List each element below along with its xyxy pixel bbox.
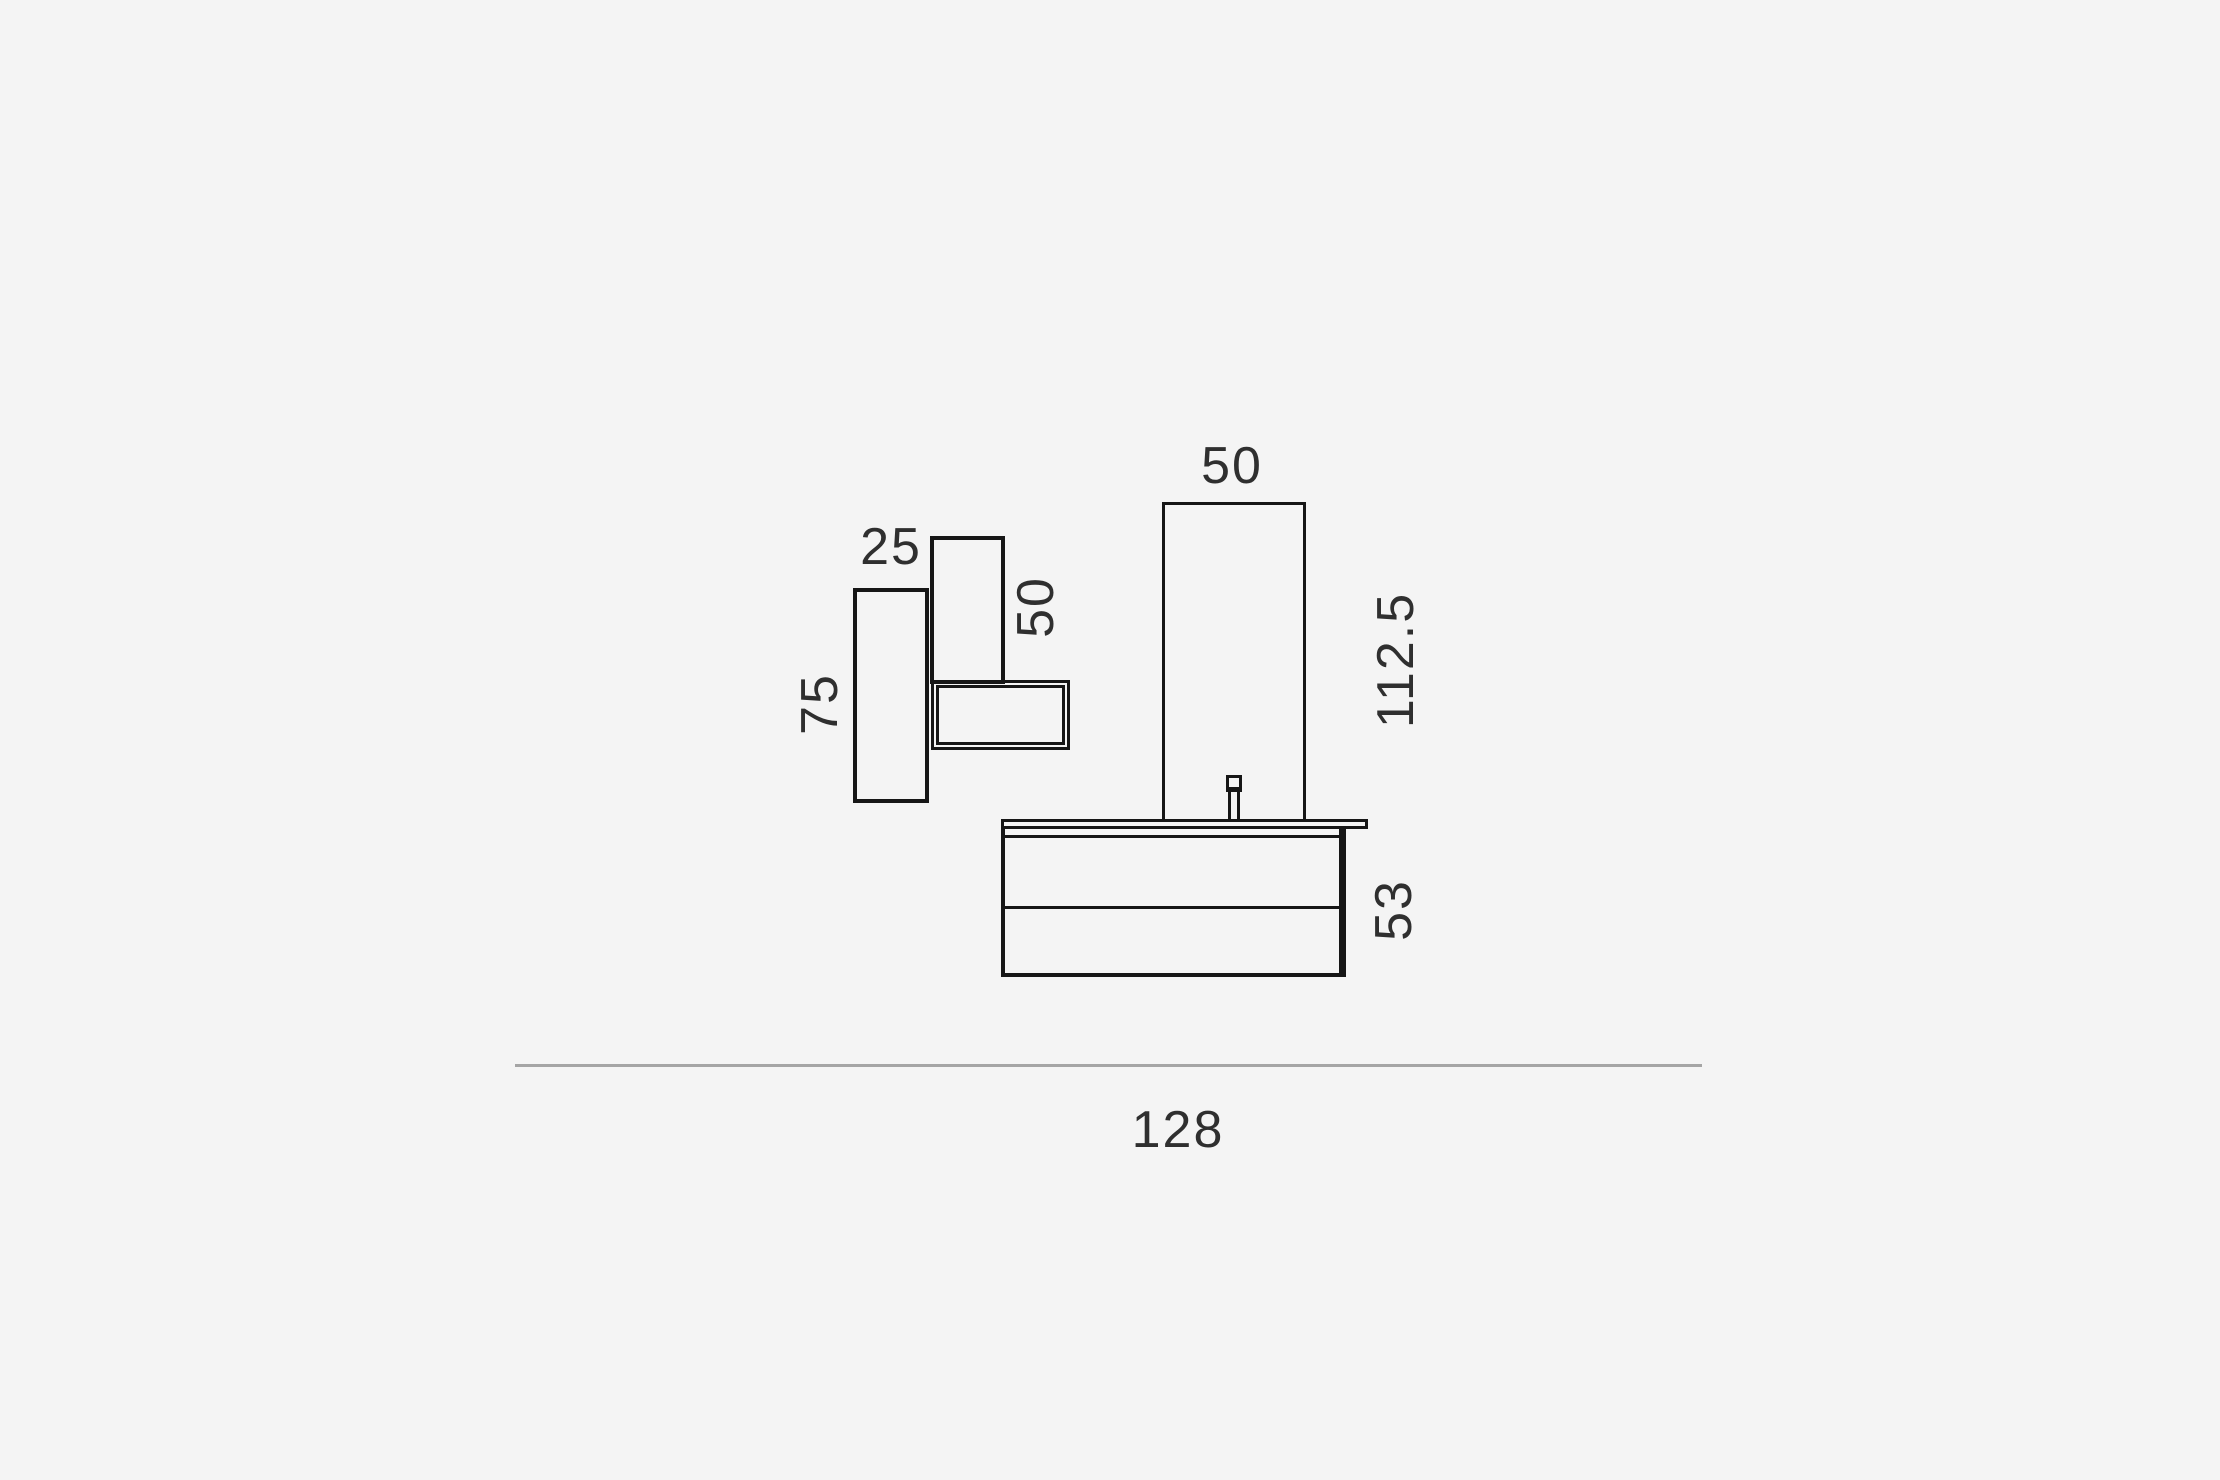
dimension-label-mirror-width: 50 <box>1201 440 1263 492</box>
open-shelf-inner-outline <box>936 685 1065 745</box>
open-shelf-outline <box>931 680 1070 750</box>
dimension-label-overall-width: 128 <box>1132 1104 1225 1156</box>
faucet-stem <box>1228 791 1240 819</box>
floor-reference-line <box>515 1064 1702 1067</box>
mirror-column-outline <box>1162 502 1306 822</box>
vanity-cabinet-outline <box>1001 829 1346 977</box>
vanity-top-edge-line <box>1005 835 1339 838</box>
dimension-label-mirror-height: 112.5 <box>1370 592 1422 728</box>
tall-wall-cabinet-outline <box>853 588 929 803</box>
vanity-drawer-divider-line <box>1005 906 1339 909</box>
small-wall-cabinet-outline <box>930 536 1005 684</box>
countertop-outline <box>1001 819 1368 829</box>
dimension-label-small-cabinet-height: 50 <box>1010 576 1062 638</box>
faucet-icon <box>1226 775 1242 792</box>
dimension-drawing-canvas: 75 25 50 50 112.5 53 128 <box>0 0 2220 1480</box>
dimension-label-tall-cabinet-height: 75 <box>794 673 846 735</box>
dimension-label-vanity-height: 53 <box>1368 879 1420 941</box>
dimension-label-small-cabinet-width: 25 <box>860 521 922 573</box>
